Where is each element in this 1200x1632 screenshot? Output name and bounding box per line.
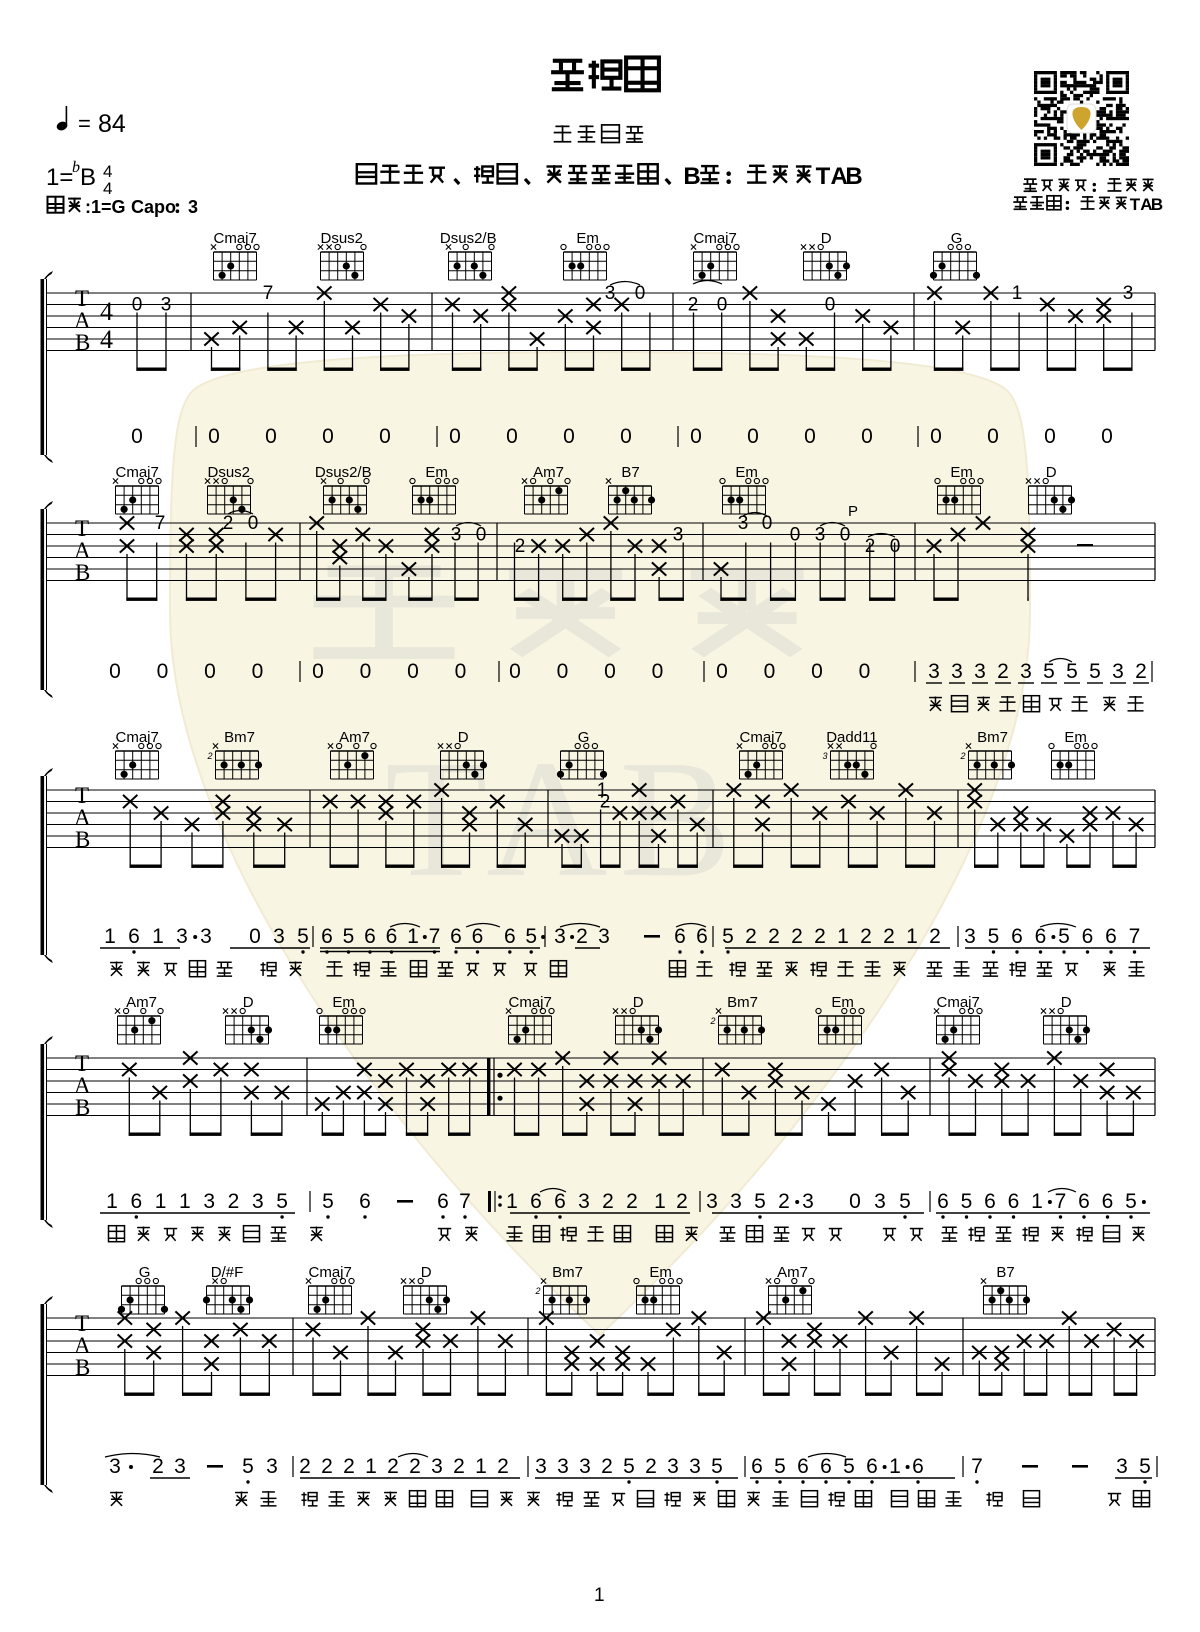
svg-text:0: 0 [1044, 425, 1056, 448]
svg-text:0: 0 [109, 660, 121, 683]
svg-text:3: 3 [730, 1190, 742, 1213]
svg-text:4: 4 [100, 325, 113, 354]
svg-text:1: 1 [1031, 1190, 1043, 1213]
svg-text:7: 7 [971, 1455, 983, 1478]
svg-text:0: 0 [811, 660, 823, 683]
svg-text:T: T [816, 163, 831, 190]
svg-text:0: 0 [840, 525, 851, 546]
svg-text:B: B [75, 1355, 90, 1380]
svg-text:B7: B7 [621, 464, 639, 481]
svg-text:3: 3 [673, 525, 684, 546]
svg-text:Cmaj7: Cmaj7 [740, 729, 783, 746]
svg-text:0: 0 [476, 525, 487, 546]
svg-text:5: 5 [322, 1190, 334, 1213]
svg-text:2: 2 [997, 660, 1009, 683]
svg-text:2: 2 [228, 1190, 240, 1213]
svg-text:6: 6 [866, 1455, 878, 1478]
svg-text:0: 0 [252, 660, 264, 683]
svg-text:Cmaj7: Cmaj7 [309, 1264, 352, 1281]
svg-text:6: 6 [554, 1190, 566, 1213]
svg-text:2: 2 [497, 1455, 509, 1478]
svg-text:6: 6 [751, 1455, 763, 1478]
svg-text:0: 0 [131, 425, 143, 448]
svg-text:0: 0 [506, 425, 518, 448]
svg-text:7: 7 [155, 513, 166, 534]
svg-text:0: 0 [861, 425, 873, 448]
svg-text:B: B [683, 163, 700, 190]
svg-text:6: 6 [1105, 925, 1117, 948]
svg-text:Cmaj7: Cmaj7 [116, 464, 159, 481]
svg-text:0: 0 [132, 295, 143, 316]
svg-text:2: 2 [778, 1190, 790, 1213]
svg-text:6: 6 [984, 1190, 996, 1213]
svg-text:Cmaj7: Cmaj7 [214, 230, 257, 247]
svg-text:6: 6 [1082, 925, 1094, 948]
svg-text:0: 0 [804, 425, 816, 448]
svg-text:0: 0 [849, 1190, 861, 1213]
svg-text:6: 6 [504, 925, 516, 948]
svg-text:0: 0 [890, 536, 901, 557]
svg-text:D/#F: D/#F [211, 1264, 244, 1281]
svg-text:3: 3 [738, 513, 749, 534]
svg-text:2: 2 [600, 792, 611, 813]
svg-text:3: 3 [598, 925, 610, 948]
svg-text:2: 2 [960, 751, 966, 761]
svg-text:2: 2 [343, 1455, 355, 1478]
svg-text:7: 7 [1055, 1190, 1067, 1213]
svg-text:3: 3 [161, 295, 172, 316]
svg-text:0: 0 [204, 660, 216, 683]
svg-text:0: 0 [557, 660, 569, 683]
svg-text:7: 7 [459, 1190, 471, 1213]
svg-text:Cmaj7: Cmaj7 [937, 994, 980, 1011]
svg-text:B: B [80, 164, 96, 191]
svg-text:0: 0 [360, 660, 372, 683]
svg-text:0: 0 [762, 513, 773, 534]
svg-text:6: 6 [321, 925, 333, 948]
svg-text:3: 3 [1020, 660, 1032, 683]
svg-text:2: 2 [576, 925, 588, 948]
svg-text:B: B [75, 560, 90, 585]
svg-text:0: 0 [635, 283, 646, 304]
svg-text:1: 1 [152, 925, 164, 948]
svg-text:3: 3 [554, 925, 566, 948]
svg-text:0: 0 [208, 425, 220, 448]
svg-text:3: 3 [605, 283, 616, 304]
svg-text:5: 5 [1043, 660, 1055, 683]
svg-text:Cmaj7: Cmaj7 [509, 994, 552, 1011]
svg-text:2: 2 [883, 925, 895, 948]
svg-text:2: 2 [929, 925, 941, 948]
svg-text:3: 3 [203, 1190, 215, 1213]
svg-text:0: 0 [859, 660, 871, 683]
svg-text:0: 0 [407, 660, 419, 683]
svg-text:B7: B7 [996, 1264, 1014, 1281]
svg-text:Dadd11: Dadd11 [826, 729, 877, 746]
svg-text:6: 6 [797, 1455, 809, 1478]
svg-text:1: 1 [407, 925, 419, 948]
svg-text:6: 6 [820, 1455, 832, 1478]
svg-text:0: 0 [157, 660, 169, 683]
svg-text:0: 0 [449, 425, 461, 448]
svg-text:Bm7: Bm7 [224, 729, 255, 746]
svg-text:0: 0 [312, 660, 324, 683]
svg-text:5: 5 [1139, 1455, 1151, 1478]
svg-text:2: 2 [299, 1455, 311, 1478]
svg-text:3: 3 [578, 1190, 590, 1213]
svg-text:0: 0 [509, 660, 521, 683]
svg-text:1: 1 [506, 1190, 518, 1213]
svg-text:7: 7 [1129, 925, 1141, 948]
svg-text:5: 5 [1125, 1190, 1137, 1213]
svg-text:0: 0 [652, 660, 664, 683]
svg-text:Dsus2/B: Dsus2/B [440, 230, 497, 247]
svg-text:b: b [72, 159, 80, 176]
svg-text:0: 0 [690, 425, 702, 448]
svg-text:2: 2 [321, 1455, 333, 1478]
svg-text:1: 1 [106, 1190, 118, 1213]
svg-text:6: 6 [386, 925, 398, 948]
svg-text:1: 1 [104, 925, 116, 948]
svg-text:0: 0 [716, 660, 728, 683]
svg-text:2: 2 [676, 1190, 688, 1213]
svg-text:1: 1 [179, 1190, 191, 1213]
svg-text:6: 6 [364, 925, 376, 948]
svg-text:6: 6 [696, 925, 708, 948]
svg-text:0: 0 [764, 660, 776, 683]
svg-text:2: 2 [688, 295, 699, 316]
svg-text:0: 0 [825, 295, 836, 316]
svg-text:B: B [75, 1095, 90, 1120]
svg-text:1: 1 [906, 925, 918, 948]
svg-text:0: 0 [248, 513, 259, 534]
svg-text:6: 6 [1102, 1190, 1114, 1213]
svg-text:6: 6 [437, 1190, 449, 1213]
svg-text:1: 1 [475, 1455, 487, 1478]
svg-text:7: 7 [429, 925, 441, 948]
svg-text:3: 3 [431, 1455, 443, 1478]
svg-text:4: 4 [103, 179, 112, 198]
svg-text:0: 0 [563, 425, 575, 448]
svg-text:3: 3 [706, 1190, 718, 1213]
svg-text:5: 5 [343, 925, 355, 948]
svg-text:1: 1 [654, 1190, 666, 1213]
svg-text:4: 4 [100, 297, 113, 326]
svg-text:0: 0 [790, 525, 801, 546]
svg-text:2: 2 [453, 1455, 465, 1478]
svg-text:5: 5 [1089, 660, 1101, 683]
svg-text:2: 2 [791, 925, 803, 948]
svg-text:5: 5 [297, 925, 309, 948]
svg-text:2: 2 [601, 1455, 613, 1478]
svg-text:6: 6 [128, 925, 140, 948]
svg-text:Bm7: Bm7 [977, 729, 1008, 746]
svg-text:2: 2 [860, 925, 872, 948]
svg-text:3: 3 [557, 1455, 569, 1478]
svg-text:2: 2 [207, 751, 213, 761]
svg-text:5: 5 [899, 1190, 911, 1213]
svg-text:2: 2 [602, 1190, 614, 1213]
svg-text:6: 6 [450, 925, 462, 948]
svg-text:5: 5 [1066, 660, 1078, 683]
svg-text:6: 6 [530, 1190, 542, 1213]
svg-text:5: 5 [711, 1455, 723, 1478]
svg-text:3: 3 [964, 925, 976, 948]
svg-text:6: 6 [130, 1190, 142, 1213]
svg-text:3: 3 [273, 925, 285, 948]
svg-text:0: 0 [987, 425, 999, 448]
svg-text:Capo: Capo [131, 197, 176, 217]
svg-text:2: 2 [223, 513, 234, 534]
svg-text:2: 2 [645, 1455, 657, 1478]
svg-text:84: 84 [98, 110, 126, 138]
svg-text:0: 0 [717, 295, 728, 316]
svg-text:1: 1 [365, 1455, 377, 1478]
svg-text:2: 2 [768, 925, 780, 948]
svg-text:6: 6 [1078, 1190, 1090, 1213]
svg-text:6: 6 [472, 925, 484, 948]
svg-text:0: 0 [1101, 425, 1113, 448]
svg-text:5: 5 [961, 1190, 973, 1213]
svg-text:B: B [75, 330, 90, 355]
svg-text:5: 5 [754, 1190, 766, 1213]
svg-text:5: 5 [623, 1455, 635, 1478]
svg-text:3: 3 [174, 1455, 186, 1478]
svg-text:3: 3 [874, 1190, 886, 1213]
svg-text:2: 2 [152, 1455, 164, 1478]
svg-text:=: = [78, 111, 91, 136]
svg-text:6: 6 [1008, 1190, 1020, 1213]
svg-text:0: 0 [249, 925, 261, 948]
svg-text:0: 0 [747, 425, 759, 448]
svg-text:2: 2 [626, 1190, 638, 1213]
svg-text:3: 3 [109, 1455, 121, 1478]
svg-text:2: 2 [865, 536, 876, 557]
svg-text:3: 3 [823, 751, 828, 761]
svg-text:0: 0 [604, 660, 616, 683]
svg-text:2: 2 [535, 1286, 541, 1296]
svg-text:3: 3 [951, 660, 963, 683]
svg-text:B: B [75, 827, 90, 852]
svg-text:3: 3 [266, 1455, 278, 1478]
svg-text:0: 0 [455, 660, 467, 683]
svg-text:3: 3 [579, 1455, 591, 1478]
svg-text:3: 3 [1116, 1455, 1128, 1478]
svg-text:1: 1 [1012, 283, 1023, 304]
svg-text:3: 3 [815, 525, 826, 546]
svg-text:3: 3 [689, 1455, 701, 1478]
svg-text:Dsus2/B: Dsus2/B [315, 464, 372, 481]
svg-text:3: 3 [928, 660, 940, 683]
svg-text:P: P [848, 503, 858, 520]
svg-text:5: 5 [988, 925, 1000, 948]
svg-text:2: 2 [710, 1016, 716, 1026]
svg-text:3: 3 [802, 1190, 814, 1213]
svg-text:T: T [1130, 195, 1141, 214]
svg-text:6: 6 [1035, 925, 1047, 948]
svg-text:5: 5 [843, 1455, 855, 1478]
svg-text:5: 5 [774, 1455, 786, 1478]
svg-text:5: 5 [1058, 925, 1070, 948]
svg-text:Cmaj7: Cmaj7 [694, 230, 737, 247]
svg-text:3: 3 [1123, 283, 1134, 304]
svg-text:3: 3 [200, 925, 212, 948]
svg-text:6: 6 [937, 1190, 949, 1213]
svg-text:0: 0 [620, 425, 632, 448]
svg-text:5: 5 [242, 1455, 254, 1478]
svg-text:3: 3 [1112, 660, 1124, 683]
svg-text:5: 5 [525, 925, 537, 948]
svg-text:2: 2 [387, 1455, 399, 1478]
svg-text:1: 1 [889, 1455, 901, 1478]
svg-text:2: 2 [409, 1455, 421, 1478]
svg-text:0: 0 [322, 425, 334, 448]
svg-text:1: 1 [594, 1585, 605, 1606]
svg-text:6: 6 [359, 1190, 371, 1213]
svg-text:2: 2 [814, 925, 826, 948]
svg-text:6: 6 [674, 925, 686, 948]
svg-text:Bm7: Bm7 [727, 994, 758, 1011]
svg-text:3: 3 [974, 660, 986, 683]
svg-text:6: 6 [912, 1455, 924, 1478]
svg-text:2: 2 [745, 925, 757, 948]
svg-text:2: 2 [1135, 660, 1147, 683]
svg-text:0: 0 [930, 425, 942, 448]
svg-text:1: 1 [155, 1190, 167, 1213]
svg-text:1: 1 [837, 925, 849, 948]
svg-text:3: 3 [188, 197, 198, 217]
svg-text:B: B [845, 163, 862, 190]
svg-text:5: 5 [722, 925, 734, 948]
svg-text:3: 3 [667, 1455, 679, 1478]
svg-text:5: 5 [276, 1190, 288, 1213]
svg-text:Cmaj7: Cmaj7 [116, 729, 159, 746]
svg-text:0: 0 [265, 425, 277, 448]
svg-text:3: 3 [535, 1455, 547, 1478]
svg-text:Bm7: Bm7 [552, 1264, 583, 1281]
svg-text:0: 0 [379, 425, 391, 448]
svg-text:3: 3 [252, 1190, 264, 1213]
svg-text::1=G: :1=G [85, 197, 126, 217]
svg-text:7: 7 [263, 283, 274, 304]
svg-text:1=: 1= [46, 164, 73, 191]
svg-text:6: 6 [1011, 925, 1023, 948]
svg-text:B: B [1151, 195, 1163, 214]
svg-text:3: 3 [451, 525, 462, 546]
svg-text:2: 2 [515, 536, 526, 557]
svg-text:3: 3 [176, 925, 188, 948]
